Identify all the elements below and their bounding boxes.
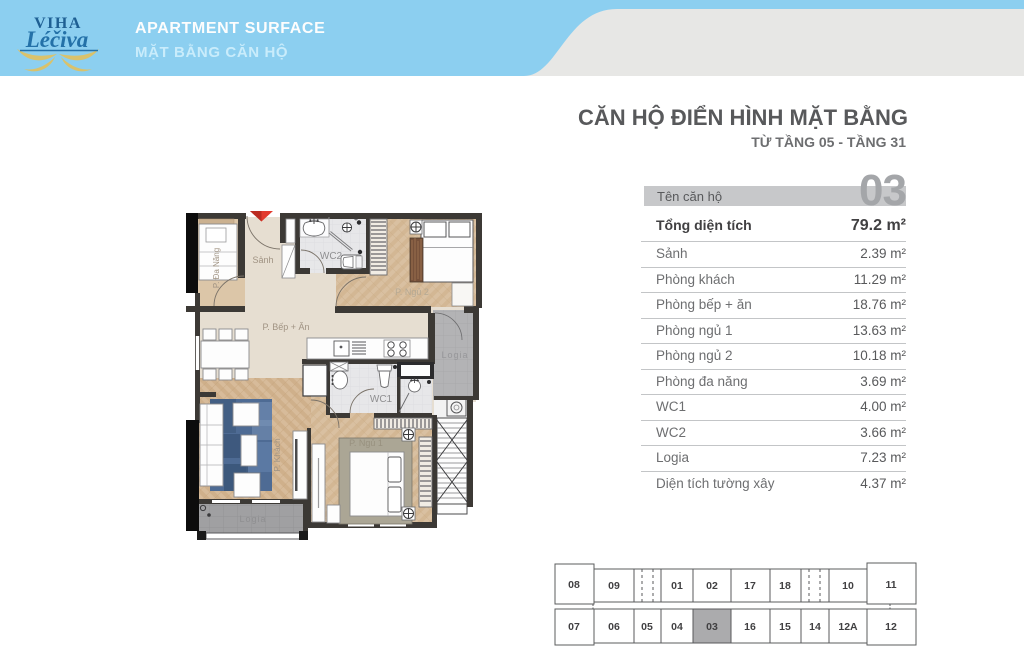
svg-text:02: 02: [706, 580, 718, 592]
svg-text:09: 09: [608, 580, 620, 592]
svg-text:17: 17: [744, 580, 756, 592]
svg-text:12: 12: [885, 621, 897, 633]
svg-text:15: 15: [779, 621, 791, 633]
svg-text:08: 08: [568, 579, 580, 591]
svg-text:11: 11: [885, 579, 896, 591]
svg-text:01: 01: [671, 580, 683, 592]
svg-text:10: 10: [842, 580, 854, 592]
svg-text:07: 07: [568, 621, 580, 633]
svg-text:03: 03: [706, 621, 718, 633]
svg-text:18: 18: [779, 580, 791, 592]
svg-text:06: 06: [608, 621, 620, 633]
svg-text:04: 04: [671, 621, 683, 633]
svg-text:12A: 12A: [838, 621, 858, 633]
svg-text:16: 16: [744, 621, 756, 633]
svg-text:05: 05: [641, 621, 653, 633]
svg-text:14: 14: [809, 621, 821, 633]
